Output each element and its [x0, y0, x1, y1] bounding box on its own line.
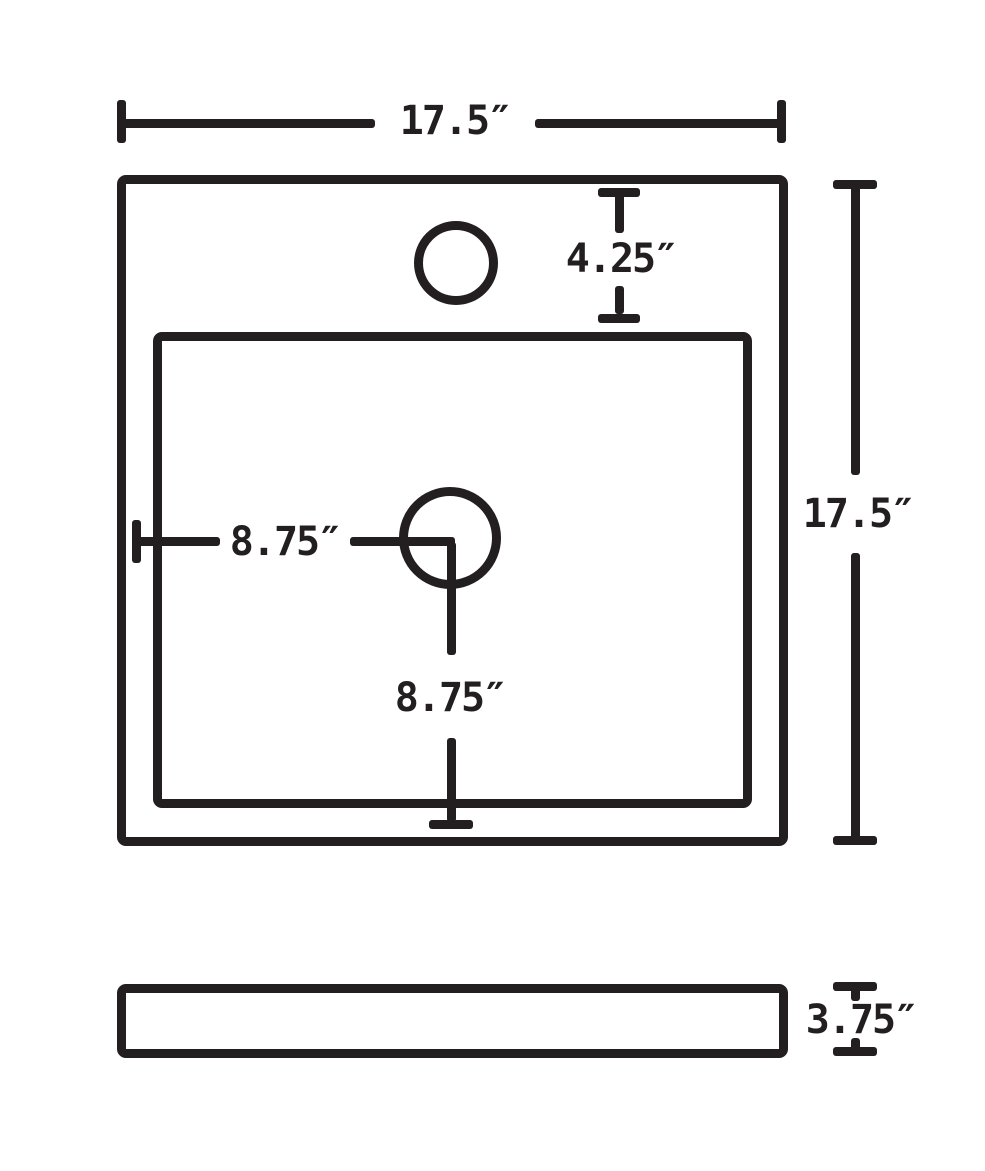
dim-side-height-bottom-cap — [833, 1047, 877, 1056]
dim-drain-horizontal-line-left — [136, 537, 220, 546]
dim-drain-vertical-line-lower — [447, 738, 456, 822]
dim-right-depth-bottom-cap — [833, 836, 877, 845]
dim-faucet-setback-label: 4.25″ — [566, 239, 676, 279]
technical-drawing-canvas: 17.5″ 4.25″ 8.75″ 8.75″ 17.5″ — [0, 0, 985, 1171]
dim-faucet-setback-line-lower — [615, 286, 624, 314]
dim-top-width-right-tick — [777, 100, 786, 143]
dim-drain-vertical-line-upper — [447, 542, 456, 655]
dim-drain-vertical-bottom-cap — [429, 820, 473, 829]
dim-right-depth-label: 17.5″ — [803, 494, 913, 534]
dim-drain-horizontal-line-right — [350, 537, 455, 546]
dim-faucet-setback-line-upper — [615, 193, 624, 233]
dim-faucet-setback-bottom-cap — [598, 314, 640, 323]
dim-right-depth-line-upper — [851, 185, 860, 475]
dim-top-width-line-left — [121, 119, 375, 128]
dim-side-height-label: 3.75″ — [806, 1000, 916, 1040]
dim-top-width-label: 17.5″ — [400, 101, 510, 141]
dim-top-width-line-right — [535, 119, 781, 128]
faucet-hole — [414, 221, 498, 305]
dim-drain-horizontal-label: 8.75″ — [230, 522, 340, 562]
dim-right-depth-line-lower — [851, 553, 860, 840]
side-view-profile — [117, 984, 788, 1058]
dim-drain-vertical-label: 8.75″ — [395, 678, 505, 718]
